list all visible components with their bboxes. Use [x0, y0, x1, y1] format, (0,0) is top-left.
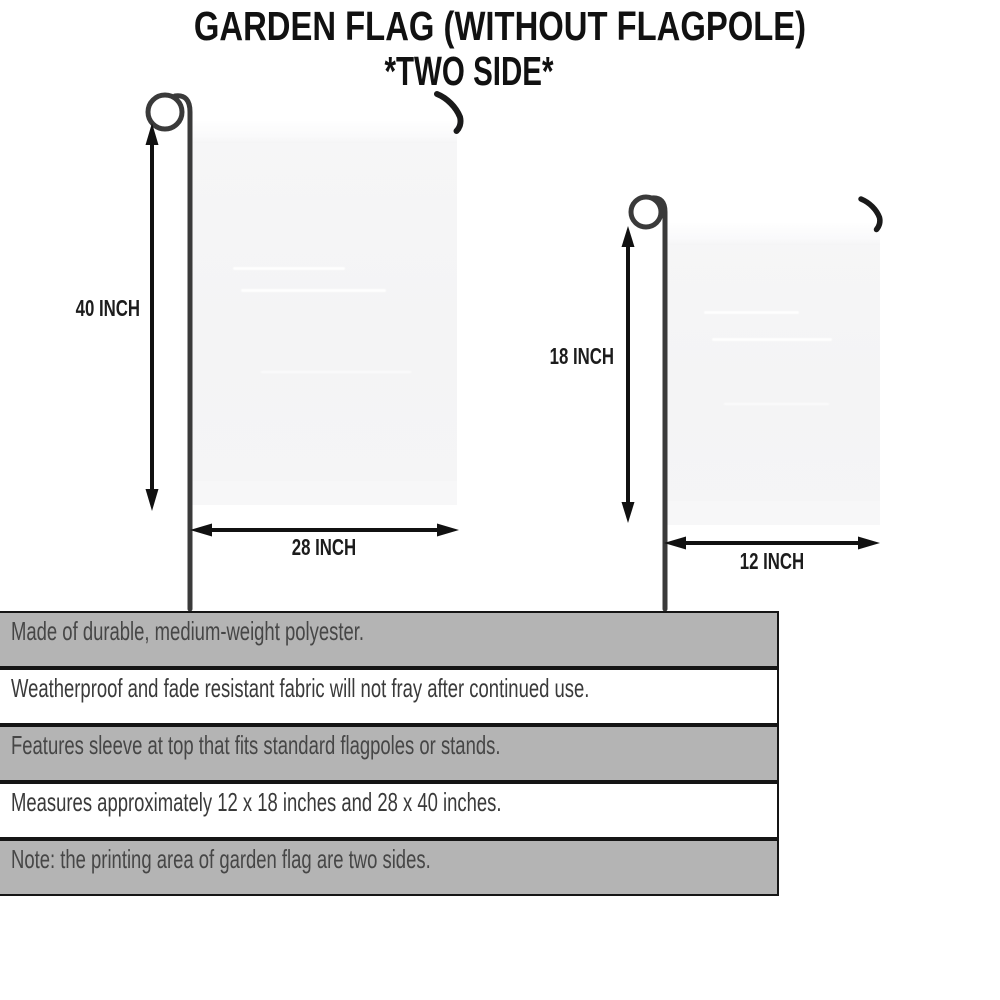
large-flagpole	[175, 96, 190, 609]
spec-table: Made of durable, medium-weight polyester…	[0, 611, 779, 896]
small-flag-hanger-hook-icon	[861, 199, 880, 230]
large-flag-height-arrow	[146, 123, 159, 511]
spec-text: Note: the printing area of garden flag a…	[11, 844, 431, 874]
arrowhead-left-icon	[190, 524, 212, 537]
spec-row-measurements: Measures approximately 12 x 18 inches an…	[0, 782, 779, 839]
arrowhead-right-icon	[437, 524, 459, 537]
large-flag-height-label: 40 INCH	[58, 295, 140, 322]
spec-row-weatherproof: Weatherproof and fade resistant fabric w…	[0, 668, 779, 725]
large-flagpole-loop-icon	[148, 95, 182, 129]
spec-text: Measures approximately 12 x 18 inches an…	[11, 787, 501, 817]
spec-row-sleeve: Features sleeve at top that fits standar…	[0, 725, 779, 782]
large-flag-hanger-hook-icon	[437, 94, 461, 131]
garden-flag-size-infographic: GARDEN FLAG (WITHOUT FLAGPOLE) *TWO SIDE…	[0, 0, 1000, 1000]
small-flag-width-label: 12 INCH	[712, 548, 832, 575]
large-flag-width-label: 28 INCH	[264, 534, 384, 561]
small-flag-height-arrow	[622, 226, 635, 523]
arrowhead-up-icon	[622, 226, 635, 247]
spec-text: Features sleeve at top that fits standar…	[11, 730, 500, 760]
arrowhead-down-icon	[622, 502, 635, 523]
small-flagpole	[652, 198, 665, 609]
spec-row-note: Note: the printing area of garden flag a…	[0, 839, 779, 896]
spec-text: Made of durable, medium-weight polyester…	[11, 616, 364, 646]
small-flagpole-loop-icon	[631, 197, 661, 227]
spec-row-material: Made of durable, medium-weight polyester…	[0, 611, 779, 668]
small-flag-height-label: 18 INCH	[531, 343, 614, 370]
arrowhead-right-icon	[858, 537, 880, 550]
arrowhead-down-icon	[146, 489, 159, 511]
spec-text: Weatherproof and fade resistant fabric w…	[11, 673, 589, 703]
